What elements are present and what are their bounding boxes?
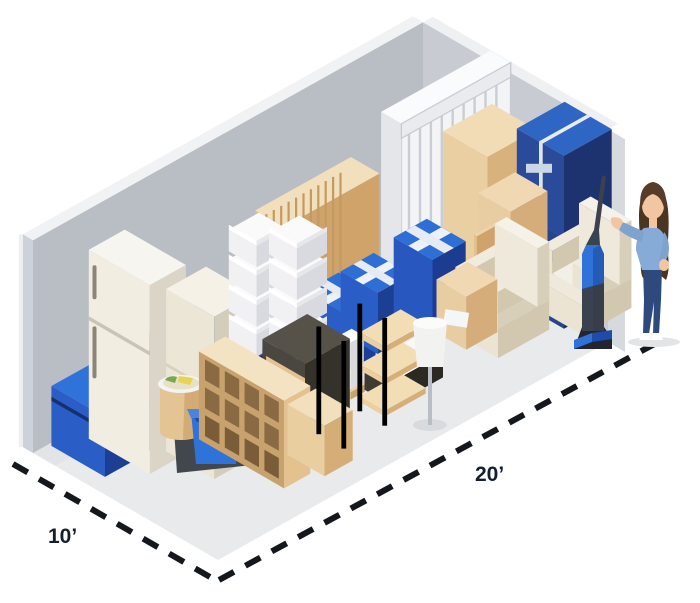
svg-text:10’: 10’ <box>48 525 77 548</box>
svg-text:20’: 20’ <box>475 463 504 486</box>
